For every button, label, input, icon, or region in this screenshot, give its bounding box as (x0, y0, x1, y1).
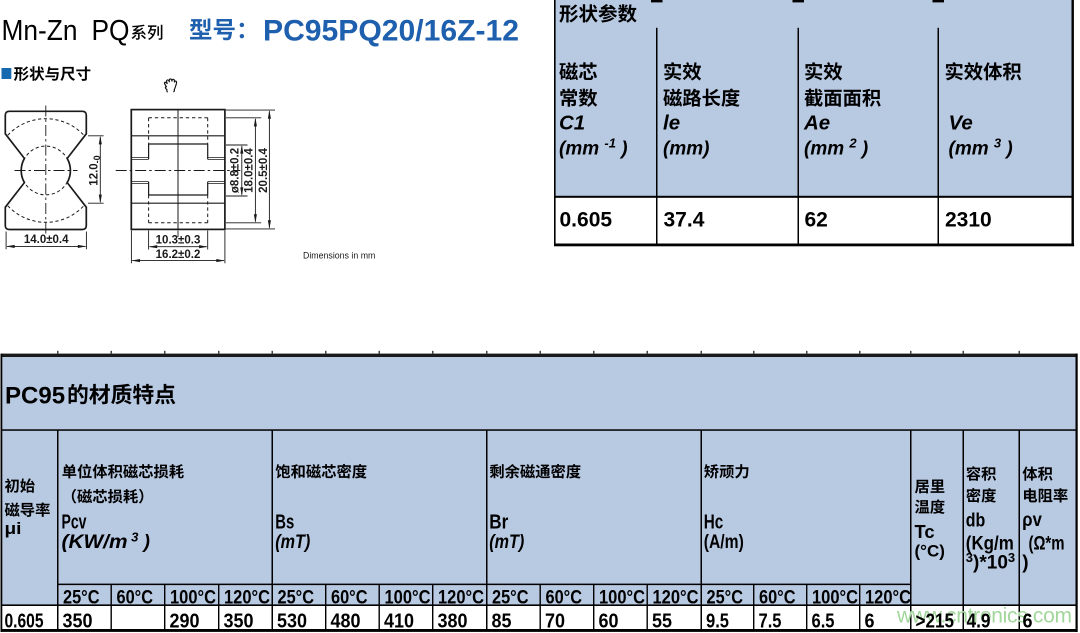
svg-text:(mm 3 ): (mm 3 ) (949, 136, 1013, 160)
svg-text:25°C: 25°C (492, 587, 529, 608)
svg-text:380: 380 (438, 609, 468, 632)
svg-text:(Ω*m: (Ω*m (1029, 534, 1065, 555)
svg-text:10.3±0.3: 10.3±0.3 (156, 235, 201, 247)
svg-text:Dimensions in mm: Dimensions in mm (303, 251, 375, 261)
svg-text:18.0±0.4: 18.0±0.4 (244, 148, 256, 193)
svg-text:290: 290 (170, 609, 200, 632)
svg-text:PC95PQ20/16Z-12: PC95PQ20/16Z-12 (263, 15, 519, 48)
svg-text:Pcv: Pcv (62, 511, 87, 534)
svg-text:60°C: 60°C (546, 587, 583, 608)
svg-text:100°C: 100°C (385, 587, 431, 608)
svg-text:Ve: Ve (949, 112, 973, 135)
svg-text:Hc: Hc (704, 511, 724, 534)
svg-text:60°C: 60°C (331, 587, 368, 608)
svg-text:C1: C1 (559, 112, 585, 135)
svg-text:(°C): (°C) (915, 542, 945, 561)
svg-text:ρv: ρv (1022, 510, 1042, 531)
svg-text:6: 6 (1023, 609, 1033, 632)
svg-text:350: 350 (224, 609, 254, 632)
svg-text:85: 85 (492, 609, 512, 632)
svg-text:9.5: 9.5 (706, 609, 729, 632)
svg-text:0.605: 0.605 (560, 209, 613, 232)
svg-text:(mT): (mT) (489, 532, 524, 553)
svg-text:Mn-Zn: Mn-Zn (2, 15, 78, 47)
svg-text:6: 6 (865, 609, 875, 632)
svg-text:PC95: PC95 (5, 383, 65, 410)
svg-text:db: db (966, 510, 986, 531)
svg-text:(A/m): (A/m) (704, 532, 744, 553)
svg-text:25°C: 25°C (707, 587, 744, 608)
svg-text:120°C: 120°C (438, 587, 484, 608)
svg-text:6.5: 6.5 (812, 609, 835, 632)
svg-text:20.5±0.4: 20.5±0.4 (258, 148, 270, 193)
svg-text:): ) (1022, 553, 1028, 574)
svg-text:480: 480 (331, 609, 361, 632)
svg-text:100°C: 100°C (599, 587, 645, 608)
svg-text:120°C: 120°C (224, 587, 270, 608)
svg-text:le: le (663, 112, 680, 135)
svg-text:60°C: 60°C (759, 587, 796, 608)
svg-text:Br: Br (489, 511, 508, 534)
svg-text:Ae: Ae (803, 112, 830, 135)
svg-text:(mm -1 ): (mm -1 ) (559, 136, 628, 160)
svg-text:70: 70 (545, 609, 565, 632)
svg-text:100°C: 100°C (170, 587, 216, 608)
svg-text:ø8.8±0.2: ø8.8±0.2 (230, 148, 242, 193)
svg-text:>215: >215 (916, 609, 955, 632)
svg-text:530: 530 (277, 609, 307, 632)
svg-text:(mm 2 ): (mm 2 ) (804, 136, 868, 160)
svg-text:120°C: 120°C (865, 587, 911, 608)
svg-text:100°C: 100°C (812, 587, 858, 608)
svg-text:(mT): (mT) (275, 532, 310, 553)
svg-text:55: 55 (652, 609, 672, 632)
svg-text:350: 350 (63, 609, 93, 632)
svg-text:16.2±0.2: 16.2±0.2 (156, 249, 201, 261)
svg-text:Tc: Tc (915, 521, 935, 542)
svg-text:25°C: 25°C (278, 587, 315, 608)
svg-text:2310: 2310 (945, 209, 992, 232)
svg-text:0.605: 0.605 (5, 609, 44, 632)
svg-text:60°C: 60°C (117, 587, 154, 608)
svg-text:25°C: 25°C (63, 587, 100, 608)
svg-text:μi: μi (5, 520, 22, 538)
svg-text:PQ: PQ (92, 15, 130, 47)
svg-text:60: 60 (599, 609, 619, 632)
svg-text:120°C: 120°C (653, 587, 699, 608)
svg-text:14.0±0.4: 14.0±0.4 (24, 234, 69, 246)
svg-text:7.5: 7.5 (759, 609, 782, 632)
svg-text:37.4: 37.4 (664, 209, 705, 232)
svg-text:3)*103: 3)*103 (966, 550, 1015, 574)
svg-text:(mm): (mm) (663, 139, 709, 160)
svg-text:Bs: Bs (275, 511, 294, 534)
svg-text:410: 410 (384, 609, 414, 632)
svg-text:62: 62 (805, 209, 828, 232)
svg-text:4.9: 4.9 (967, 609, 991, 632)
